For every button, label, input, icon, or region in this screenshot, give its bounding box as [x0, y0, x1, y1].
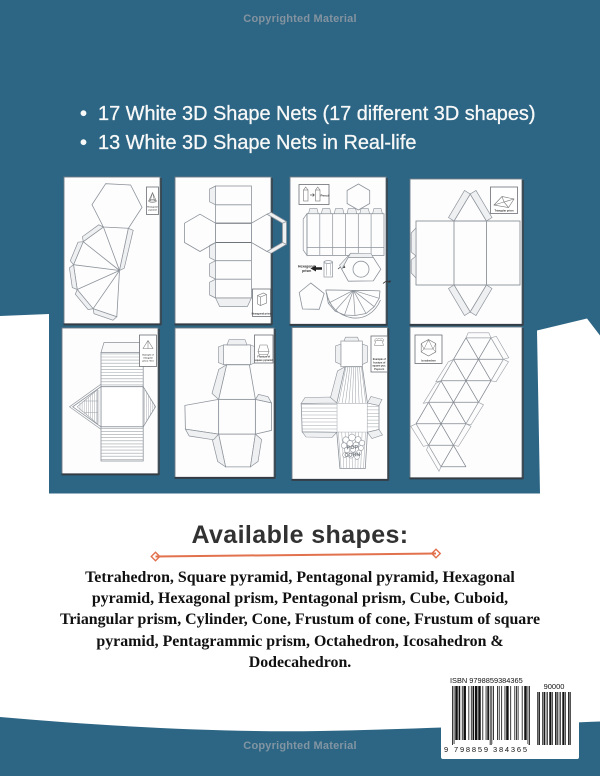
svg-text:Triangular prism: Triangular prism — [494, 209, 514, 212]
svg-text:square pyramid: square pyramid — [255, 359, 274, 362]
svg-text:prism: prism — [302, 269, 311, 273]
svg-text:Pencil: Pencil — [321, 194, 330, 198]
svg-text:triangular: triangular — [143, 357, 153, 360]
svg-text:Hexagonal: Hexagonal — [147, 207, 158, 209]
svg-text:CORN: CORN — [344, 452, 360, 459]
svg-text:pyramid: pyramid — [148, 208, 157, 211]
svg-text:Example of: Example of — [142, 355, 153, 357]
svg-text:prism: Tent: prism: Tent — [142, 360, 153, 363]
svg-text:90000: 90000 — [544, 682, 565, 691]
svg-text:ISBN 9798859384365: ISBN 9798859384365 — [450, 676, 523, 685]
svg-text:Hexagonal prism: Hexagonal prism — [252, 312, 272, 315]
svg-text:Popcorn: Popcorn — [374, 368, 384, 371]
svg-text:Icosahedron: Icosahedron — [421, 359, 436, 362]
svg-text:POP: POP — [347, 445, 359, 452]
